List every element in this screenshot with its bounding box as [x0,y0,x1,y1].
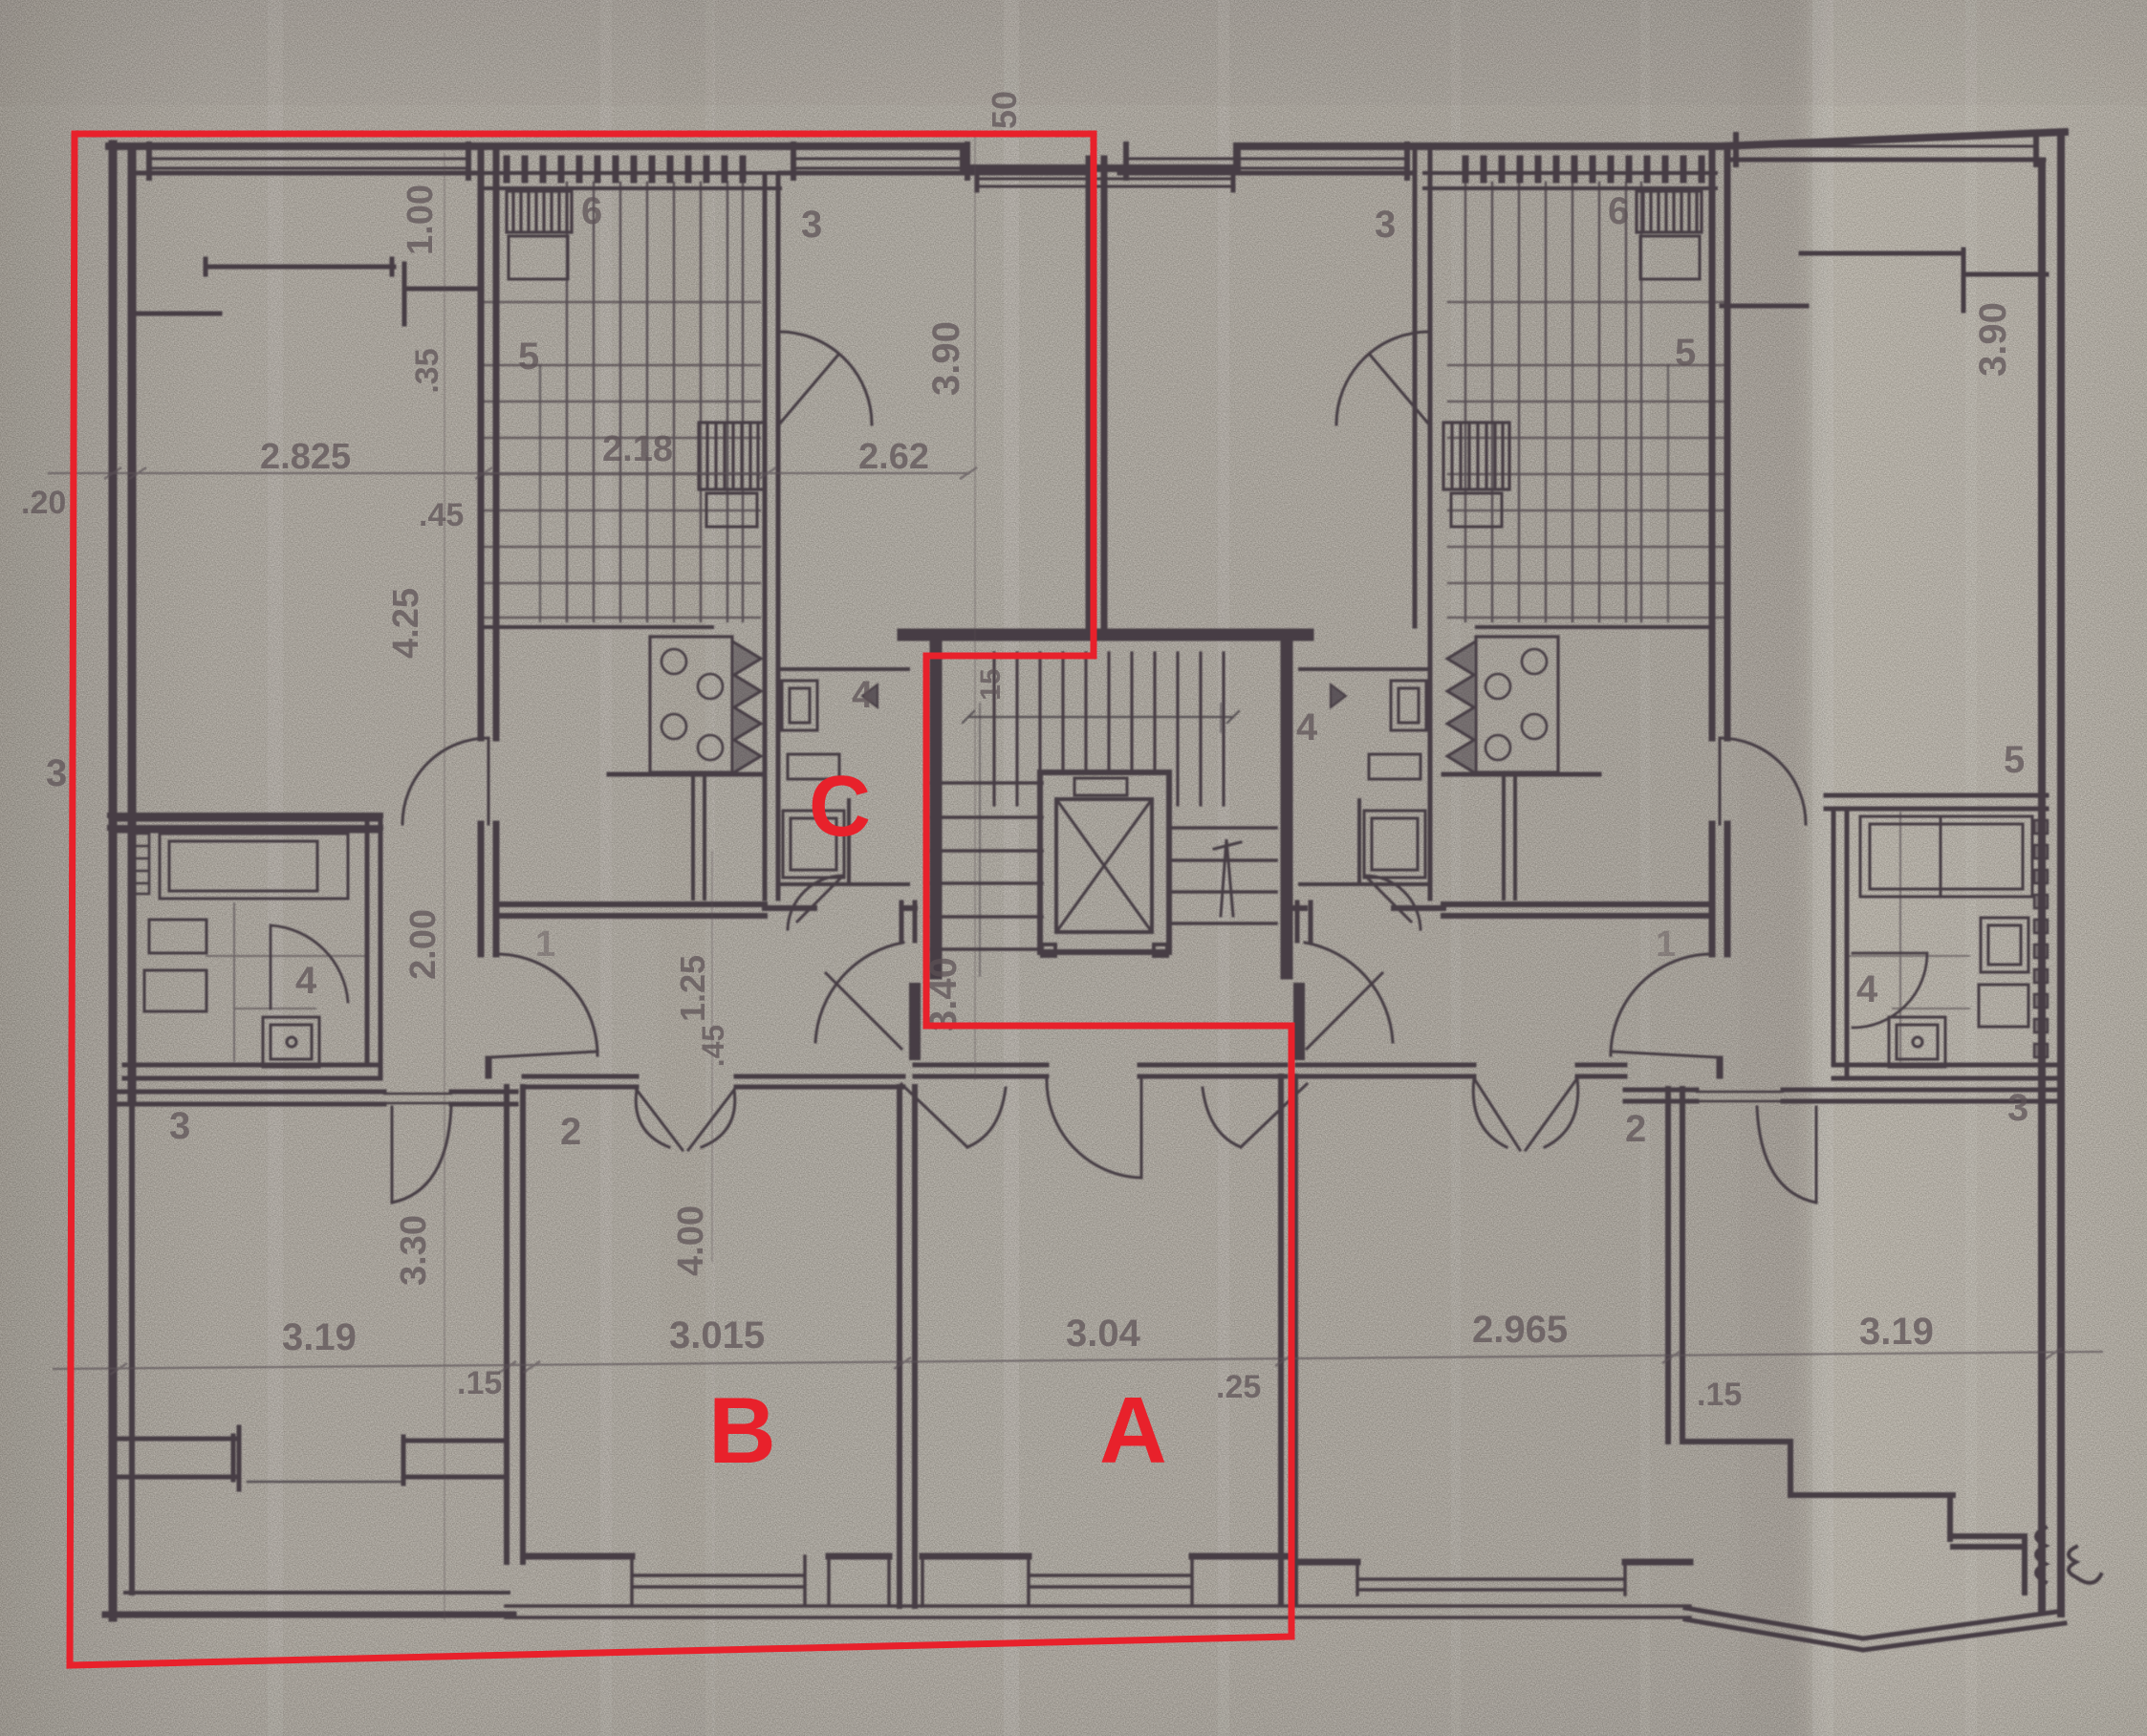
svg-text:2.00: 2.00 [403,909,444,980]
svg-text:3.90: 3.90 [925,321,967,396]
svg-text:C: C [809,759,871,855]
svg-text:4: 4 [295,960,317,1002]
svg-text:3.04: 3.04 [1066,1313,1141,1355]
svg-text:6: 6 [1608,190,1629,232]
svg-text:1.25: 1.25 [673,955,712,1022]
svg-text:2.825: 2.825 [260,437,351,477]
svg-text:3.19: 3.19 [282,1316,357,1358]
svg-text:5: 5 [1675,332,1696,374]
svg-text:A: A [1099,1378,1167,1483]
svg-text:2: 2 [560,1111,581,1153]
svg-text:15: 15 [975,668,1007,700]
svg-text:3.19: 3.19 [1859,1311,1934,1353]
svg-text:3: 3 [801,204,822,246]
svg-text:2.62: 2.62 [858,437,929,477]
svg-text:5: 5 [2004,739,2025,781]
svg-text:B: B [708,1378,776,1483]
svg-text:3.90: 3.90 [1972,302,2014,377]
svg-text:4: 4 [852,674,874,716]
svg-text:5: 5 [518,336,539,378]
svg-text:.15: .15 [1697,1377,1742,1413]
svg-text:3.015: 3.015 [669,1314,765,1356]
svg-text:1: 1 [535,924,555,965]
svg-text:.35: .35 [409,348,445,393]
svg-text:4: 4 [1296,706,1318,749]
svg-text:4: 4 [1856,968,1878,1010]
svg-text:.45: .45 [419,497,464,533]
svg-text:2.965: 2.965 [1472,1309,1568,1351]
svg-text:.25: .25 [1216,1369,1261,1405]
svg-text:1: 1 [1656,924,1676,965]
svg-text:4.00: 4.00 [671,1205,711,1276]
svg-text:6: 6 [581,190,602,232]
svg-text:.45: .45 [696,1025,730,1067]
svg-text:3: 3 [46,752,67,794]
svg-text:2.18: 2.18 [602,429,673,469]
svg-text:3.30: 3.30 [394,1215,434,1286]
svg-text:1.00: 1.00 [401,184,441,255]
svg-text:3: 3 [1375,204,1396,246]
svg-text:2: 2 [1625,1108,1646,1150]
svg-text:3: 3 [2007,1087,2028,1129]
svg-text:3: 3 [169,1105,190,1147]
svg-text:.15: .15 [457,1365,502,1401]
svg-text:4.25: 4.25 [386,588,426,659]
svg-text:.20: .20 [21,485,66,521]
